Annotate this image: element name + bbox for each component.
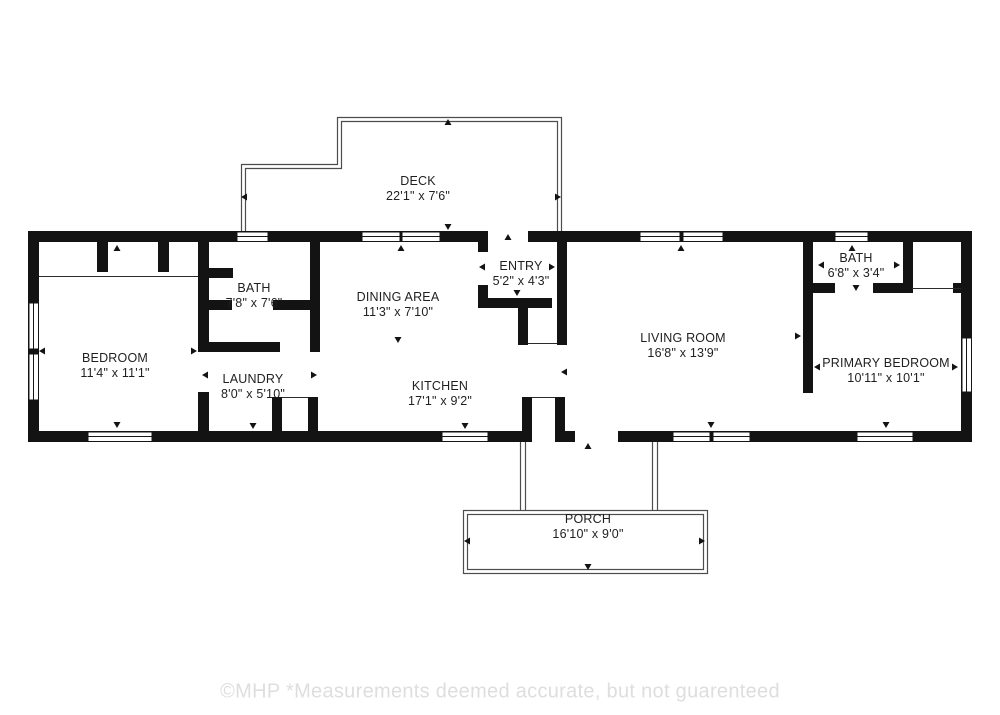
window (29, 354, 39, 400)
room-name: LAUNDRY (223, 372, 284, 387)
porch-outline (464, 442, 708, 574)
room-dims: 10'11" x 10'1" (847, 371, 924, 386)
measure-arrows (39, 119, 958, 570)
room-name: LIVING ROOM (640, 331, 726, 346)
room-label-bath-right: BATH 6'8" x 3'4" (828, 251, 885, 281)
room-name: DINING AREA (357, 290, 440, 305)
window (88, 432, 152, 442)
window (713, 432, 750, 442)
room-label-living: LIVING ROOM 16'8" x 13'9" (640, 331, 726, 361)
room-dims: 7'8" x 7'6" (226, 296, 283, 311)
footer-disclaimer: ©MHP *Measurements deemed accurate, but … (220, 681, 780, 704)
window (640, 232, 680, 242)
room-dims: 11'4" x 11'1" (80, 366, 149, 381)
arrows-left (39, 194, 824, 545)
window (237, 232, 268, 242)
room-name: BATH (839, 251, 872, 266)
window (362, 232, 400, 242)
room-dims: 17'1" x 9'2" (408, 394, 472, 409)
room-label-primary: PRIMARY BEDROOM 10'11" x 10'1" (822, 356, 950, 386)
room-name: KITCHEN (412, 379, 468, 394)
room-dims: 16'10" x 9'0" (552, 527, 623, 542)
room-label-bedroom: BEDROOM 11'4" x 11'1" (80, 351, 149, 381)
floor-plan: DECK 22'1" x 7'6" BEDROOM 11'4" x 11'1" … (0, 0, 1000, 715)
room-label-kitchen: KITCHEN 17'1" x 9'2" (408, 379, 472, 409)
room-name: ENTRY (499, 259, 542, 274)
window (857, 432, 913, 442)
room-dims: 8'0" x 5'10" (221, 387, 285, 402)
room-dims: 11'3" x 7'10" (363, 305, 433, 320)
room-label-dining: DINING AREA 11'3" x 7'10" (357, 290, 440, 320)
room-label-entry: ENTRY 5'2" x 4'3" (493, 259, 550, 289)
window (962, 338, 972, 392)
window (29, 303, 39, 349)
room-name: BEDROOM (82, 351, 148, 366)
window (402, 232, 440, 242)
room-label-bath-left: BATH 7'8" x 7'6" (226, 281, 283, 311)
room-label-deck: DECK 22'1" x 7'6" (386, 174, 450, 204)
window (835, 232, 868, 242)
room-name: PORCH (565, 512, 611, 527)
room-name: DECK (400, 174, 436, 189)
window (683, 232, 723, 242)
room-name: PRIMARY BEDROOM (822, 356, 950, 371)
room-label-laundry: LAUNDRY 8'0" x 5'10" (221, 372, 285, 402)
window (442, 432, 488, 442)
room-name: BATH (237, 281, 270, 296)
room-dims: 16'8" x 13'9" (647, 346, 718, 361)
room-dims: 22'1" x 7'6" (386, 189, 450, 204)
window (673, 432, 710, 442)
room-dims: 6'8" x 3'4" (828, 266, 885, 281)
room-dims: 5'2" x 4'3" (493, 274, 550, 289)
room-label-porch: PORCH 16'10" x 9'0" (552, 512, 623, 542)
